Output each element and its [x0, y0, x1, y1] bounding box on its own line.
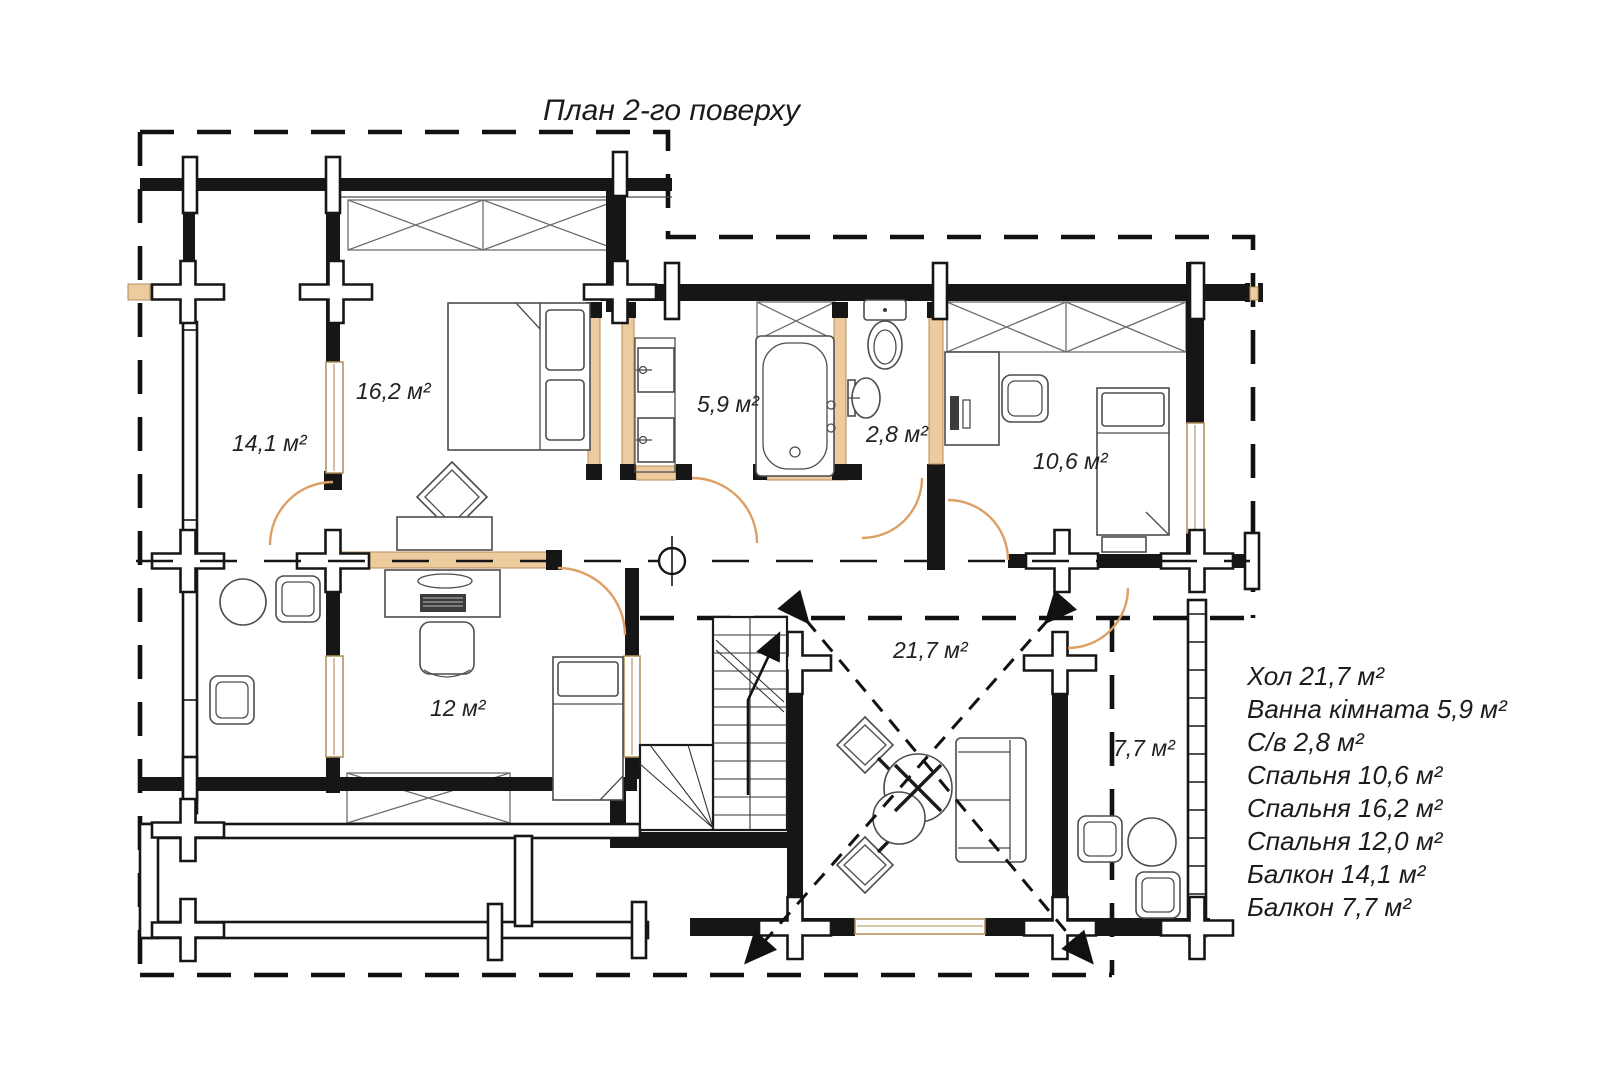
nightstand-icon — [1102, 537, 1146, 552]
lower-outline-bands — [140, 824, 648, 938]
door-bathroom — [692, 478, 757, 543]
room-label-hall: 21,7 м² — [892, 637, 969, 663]
room-label-bathroom: 5,9 м² — [697, 391, 760, 417]
legend-item-bedroom162: Спальня 16,2 м² — [1247, 792, 1507, 825]
log-wall-right — [1188, 600, 1206, 936]
window-balcony-lower — [326, 656, 343, 757]
legend-item-bathroom: Ванна кімната 5,9 м² — [1247, 693, 1507, 726]
legend-item-wc: С/в 2,8 м² — [1247, 726, 1507, 759]
window-hall-south — [855, 919, 985, 934]
room-label-balcony-right: 7,7 м² — [1113, 735, 1176, 761]
room-label-bedroom162: 16,2 м² — [356, 378, 432, 404]
window-bedroom106-east — [1187, 423, 1204, 533]
wc-sink-icon — [848, 378, 880, 418]
room-label-bedroom106: 10,6 м² — [1033, 448, 1109, 474]
chair-bedroom12-icon — [420, 622, 474, 677]
wood-partitions — [128, 284, 1258, 570]
legend-item-balcony77: Балкон 7,7 м² — [1247, 891, 1507, 924]
wardrobe-bedroom106-icon — [947, 302, 1186, 352]
legend-item-bedroom12: Спальня 12,0 м² — [1247, 825, 1507, 858]
desk-bedroom106-icon — [945, 352, 999, 445]
room-label-wc: 2,8 м² — [865, 421, 929, 447]
bathroom-shelf-icon — [757, 302, 835, 340]
door-bedroom106 — [948, 500, 1008, 560]
staircase — [640, 617, 787, 830]
legend: Хол 21,7 м² Ванна кімната 5,9 м² С/в 2,8… — [1247, 660, 1507, 924]
hall-table-icon — [873, 754, 952, 844]
room-label-balcony-left: 14,1 м² — [232, 430, 308, 456]
legend-item-bedroom106: Спальня 10,6 м² — [1247, 759, 1507, 792]
room-label-bedroom12: 12 м² — [430, 695, 487, 721]
balcony-left-seating — [210, 576, 320, 724]
legend-item-balcony141: Балкон 14,1 м² — [1247, 858, 1507, 891]
wardrobe-top-icon — [348, 200, 618, 250]
desk-bedroom162-icon — [397, 517, 492, 550]
balcony-right-seating — [1078, 816, 1180, 918]
door-bedroom12 — [558, 568, 625, 635]
floor-plan-page: 14,1 м² 16,2 м² 5,9 м² 2,8 м² 10,6 м² 12… — [0, 0, 1600, 1067]
door-balcony-left — [270, 482, 333, 545]
desk-bedroom12-icon — [385, 570, 500, 617]
page-title: План 2-го поверху — [543, 94, 800, 128]
chair-bedroom106-icon — [1002, 375, 1048, 422]
double-bed-icon — [448, 303, 590, 450]
toilet-icon — [864, 300, 906, 369]
door-wc — [862, 478, 922, 538]
window-bedroom12-east — [624, 656, 640, 757]
bathtub-icon — [756, 336, 835, 476]
bed-bedroom106-icon — [1097, 388, 1169, 552]
window-balcony-upper — [326, 362, 343, 473]
hall-chair-top-icon — [837, 717, 897, 777]
legend-item-hall: Хол 21,7 м² — [1247, 660, 1507, 693]
double-sink-icon — [635, 338, 675, 472]
bed-bedroom12-icon — [553, 657, 623, 800]
